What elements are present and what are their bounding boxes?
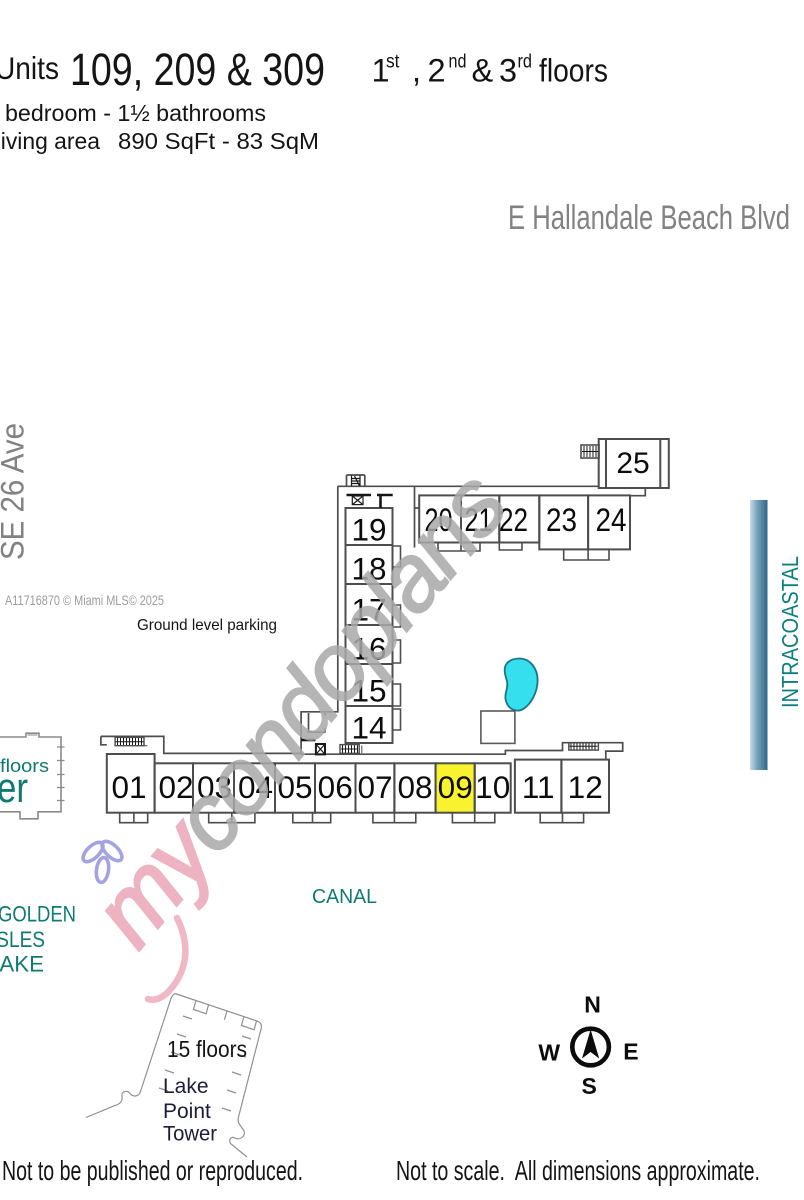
- svg-text:LAKE: LAKE: [0, 952, 44, 977]
- svg-text:2: 2: [428, 53, 446, 89]
- svg-text:Point: Point: [163, 1100, 211, 1123]
- svg-text:&: &: [472, 53, 494, 89]
- svg-text:07: 07: [357, 769, 392, 805]
- svg-text:E Hallandale Beach Blvd: E Hallandale Beach Blvd: [508, 199, 790, 237]
- svg-text:st: st: [386, 52, 400, 73]
- svg-text:Living area: Living area: [0, 128, 101, 154]
- svg-text:01: 01: [111, 769, 146, 805]
- svg-text:890 SqFt - 83 SqM: 890 SqFt - 83 SqM: [118, 128, 319, 154]
- svg-text:Lake: Lake: [163, 1075, 209, 1098]
- svg-text:24: 24: [596, 502, 627, 538]
- svg-text:Units: Units: [0, 50, 59, 86]
- svg-text:12: 12: [568, 769, 603, 805]
- svg-text:109, 209 & 309: 109, 209 & 309: [70, 44, 325, 95]
- svg-text:floors: floors: [539, 53, 608, 89]
- svg-text:23: 23: [546, 502, 577, 538]
- svg-text:11: 11: [522, 769, 555, 805]
- svg-text:10: 10: [475, 769, 510, 805]
- svg-text:CANAL: CANAL: [312, 886, 377, 908]
- svg-text:er: er: [0, 764, 28, 811]
- svg-text:W: W: [538, 1040, 560, 1066]
- svg-text:,: ,: [412, 53, 421, 89]
- svg-text:09: 09: [438, 769, 473, 805]
- svg-text:08: 08: [397, 769, 432, 805]
- svg-text:GOLDEN: GOLDEN: [0, 902, 76, 927]
- svg-text:INTRACOASTAL: INTRACOASTAL: [777, 556, 803, 708]
- svg-text:Not to scale. All dimensions: Not to scale. All dimensions approximate…: [396, 1155, 760, 1186]
- svg-text:SE 26 Ave: SE 26 Ave: [0, 423, 31, 560]
- svg-text:ISLES: ISLES: [0, 927, 45, 952]
- svg-text:E: E: [623, 1039, 638, 1065]
- svg-text:15 floors: 15 floors: [167, 1036, 247, 1062]
- svg-text:3: 3: [499, 53, 517, 89]
- svg-text:A11716870 © Miami MLS© 2025: A11716870 © Miami MLS© 2025: [5, 593, 164, 608]
- svg-text:nd: nd: [449, 52, 467, 73]
- svg-text:Ground level parking: Ground level parking: [137, 617, 277, 634]
- svg-text:Not to be published or reprodu: Not to be published or reproduced.: [2, 1155, 303, 1186]
- svg-text:06: 06: [318, 769, 353, 805]
- svg-text:25: 25: [616, 447, 649, 480]
- svg-text:rd: rd: [518, 52, 533, 73]
- svg-text:Tower: Tower: [163, 1122, 217, 1145]
- svg-text:N: N: [584, 992, 601, 1018]
- svg-text:S: S: [582, 1073, 597, 1099]
- svg-text:bedroom - 1½ bathrooms: bedroom - 1½ bathrooms: [5, 100, 266, 126]
